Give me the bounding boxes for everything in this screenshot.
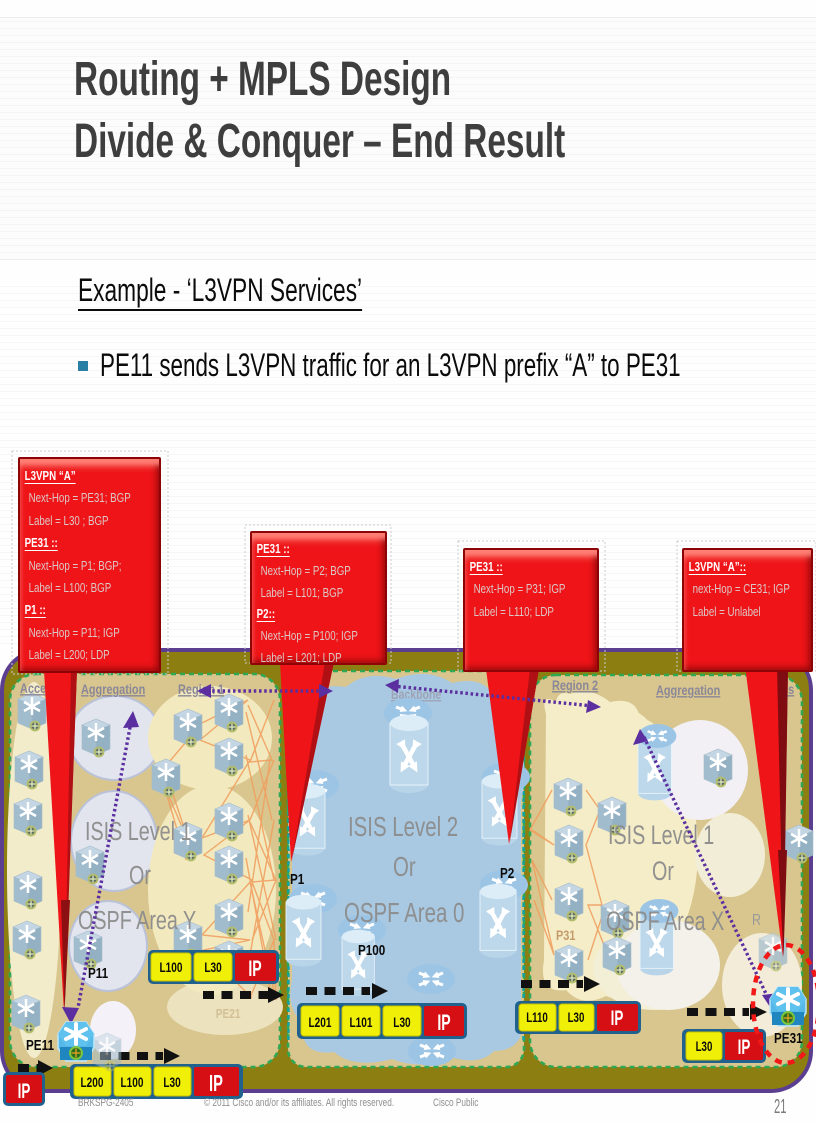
svg-text:L110: L110 bbox=[526, 1011, 548, 1026]
svg-text:PE11: PE11 bbox=[26, 1037, 54, 1054]
svg-text:Or: Or bbox=[393, 852, 416, 883]
svg-text:OSPF Area Y: OSPF Area Y bbox=[78, 905, 196, 934]
svg-text:L30: L30 bbox=[204, 959, 222, 975]
svg-text:PE21: PE21 bbox=[216, 1007, 241, 1021]
svg-text:P2: P2 bbox=[500, 865, 514, 882]
svg-text:OSPF Area X: OSPF Area X bbox=[606, 907, 724, 937]
svg-text:P100: P100 bbox=[358, 942, 385, 959]
svg-text:Region 2: Region 2 bbox=[552, 678, 598, 694]
svg-text:L100: L100 bbox=[160, 959, 183, 975]
svg-text:IP: IP bbox=[18, 1079, 31, 1103]
svg-text:L100: L100 bbox=[121, 1074, 144, 1090]
svg-text:IP: IP bbox=[738, 1035, 751, 1059]
svg-text:L101: L101 bbox=[350, 1014, 373, 1030]
svg-text:P1: P1 bbox=[290, 871, 305, 888]
svg-text:L30: L30 bbox=[696, 1040, 713, 1055]
svg-text:L30: L30 bbox=[568, 1011, 585, 1026]
svg-text:Or: Or bbox=[129, 860, 151, 889]
svg-text:IP: IP bbox=[209, 1072, 223, 1097]
svg-text:Aggregation: Aggregation bbox=[656, 683, 720, 699]
svg-text:IP: IP bbox=[611, 1006, 624, 1030]
svg-text:IP: IP bbox=[248, 956, 261, 981]
svg-text:ISIS Level 1: ISIS Level 1 bbox=[608, 821, 714, 851]
svg-text:L200: L200 bbox=[81, 1074, 104, 1090]
svg-text:OSPF Area 0: OSPF Area 0 bbox=[344, 898, 464, 929]
svg-text:IP: IP bbox=[437, 1010, 450, 1035]
svg-text:R: R bbox=[752, 912, 761, 930]
svg-text:ISIS Level 1: ISIS Level 1 bbox=[85, 816, 191, 845]
svg-text:L201: L201 bbox=[309, 1014, 332, 1030]
svg-text:P31: P31 bbox=[556, 928, 575, 944]
svg-text:L30: L30 bbox=[163, 1074, 181, 1090]
svg-text:Aggregation: Aggregation bbox=[81, 682, 145, 698]
svg-text:Or: Or bbox=[652, 857, 674, 887]
svg-text:P11: P11 bbox=[88, 965, 109, 982]
svg-text:L30: L30 bbox=[393, 1014, 411, 1030]
svg-text:ISIS Level 2: ISIS Level 2 bbox=[348, 812, 458, 843]
svg-text:PE31: PE31 bbox=[774, 1030, 803, 1047]
